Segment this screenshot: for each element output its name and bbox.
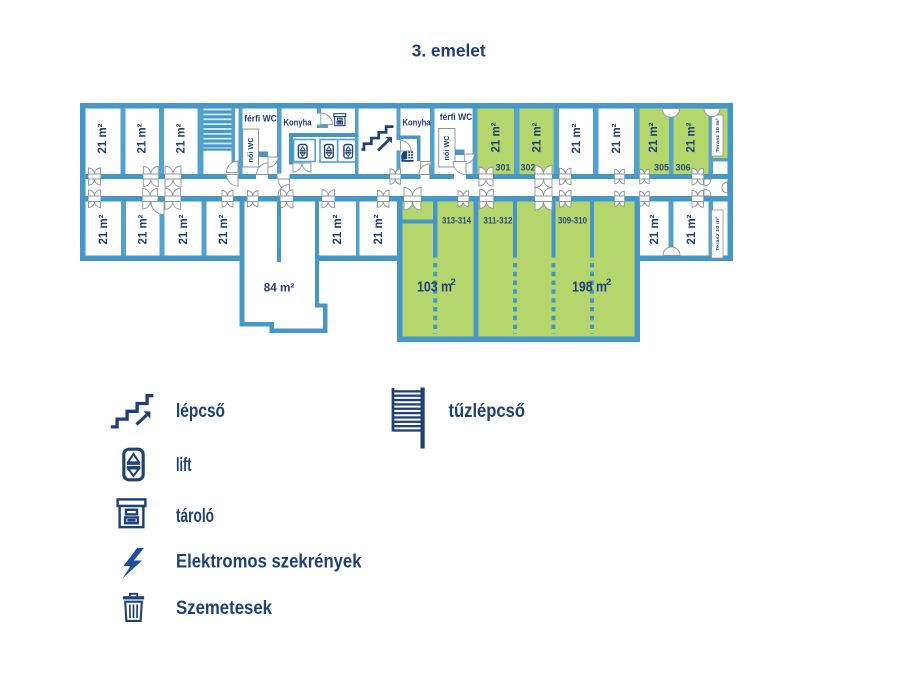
svg-text:2: 2: [606, 277, 611, 288]
svg-text:tűzlépcső: tűzlépcső: [449, 401, 526, 422]
svg-text:21 m²: 21 m²: [174, 124, 188, 154]
svg-text:Konyha: Konyha: [284, 118, 313, 128]
svg-text:21 m²: 21 m²: [684, 123, 698, 153]
svg-text:21 m²: 21 m²: [569, 124, 583, 154]
svg-text:Konyha: Konyha: [403, 118, 432, 128]
svg-text:tároló: tároló: [176, 506, 214, 527]
svg-text:21 m²: 21 m²: [176, 215, 190, 245]
svg-text:21 m²: 21 m²: [530, 123, 544, 153]
svg-text:21 m²: 21 m²: [216, 215, 230, 245]
svg-text:női WC: női WC: [442, 136, 451, 161]
svg-text:305: 305: [654, 163, 669, 173]
svg-text:21 m²: 21 m²: [489, 123, 503, 153]
svg-text:női WC: női WC: [246, 138, 255, 163]
svg-text:21 m²: 21 m²: [647, 215, 661, 245]
svg-text:21 m²: 21 m²: [95, 124, 109, 154]
svg-text:306: 306: [675, 163, 690, 173]
svg-text:21 m²: 21 m²: [136, 215, 150, 245]
svg-text:Szemetesek: Szemetesek: [176, 598, 272, 619]
svg-text:301: 301: [495, 163, 510, 173]
svg-text:84 m²: 84 m²: [264, 280, 295, 294]
svg-text:302: 302: [520, 163, 535, 173]
svg-text:Terasz 10 m²: Terasz 10 m²: [715, 118, 720, 153]
svg-text:309-310: 309-310: [558, 216, 587, 226]
svg-text:Elektromos szekrények: Elektromos szekrények: [176, 552, 362, 573]
svg-text:21 m²: 21 m²: [135, 124, 149, 154]
svg-text:21 m²: 21 m²: [684, 215, 698, 245]
svg-text:lift: lift: [176, 455, 192, 476]
svg-text:311-312: 311-312: [484, 216, 513, 226]
svg-text:Terasz 10 m²: Terasz 10 m²: [715, 216, 720, 251]
svg-text:21 m²: 21 m²: [330, 215, 344, 245]
svg-text:313-314: 313-314: [442, 216, 471, 226]
svg-text:lépcső: lépcső: [176, 401, 225, 422]
svg-text:21 m²: 21 m²: [96, 215, 110, 245]
svg-text:21 m²: 21 m²: [646, 123, 660, 153]
svg-text:3. emelet: 3. emelet: [412, 41, 486, 61]
svg-text:2: 2: [451, 277, 456, 288]
svg-text:103 m: 103 m: [417, 280, 452, 296]
svg-text:férfi WC: férfi WC: [244, 114, 277, 124]
svg-text:21 m²: 21 m²: [609, 124, 623, 154]
svg-text:férfi WC: férfi WC: [440, 112, 473, 122]
svg-text:21 m²: 21 m²: [371, 215, 385, 245]
svg-text:198 m: 198 m: [572, 280, 607, 296]
